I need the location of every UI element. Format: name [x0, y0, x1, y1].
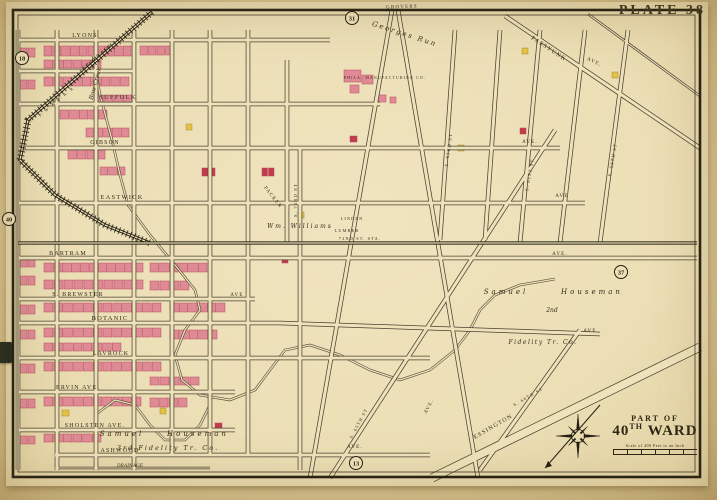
brick-building — [20, 305, 27, 314]
brick-building — [113, 328, 122, 337]
brick-building — [74, 362, 83, 371]
brick-building — [64, 303, 73, 312]
brick-building — [73, 434, 82, 442]
plate-ref-number: 37 — [618, 269, 625, 276]
brick-building — [20, 330, 27, 339]
brick-building — [124, 280, 133, 289]
street-line — [485, 30, 500, 240]
street-label: LAVROCK — [93, 351, 130, 357]
brick-building — [121, 128, 129, 137]
brick-building — [103, 303, 112, 312]
street-label: PACKER — [262, 186, 282, 210]
brick-building — [100, 167, 108, 175]
brick-building — [28, 399, 35, 408]
brick-building — [150, 377, 159, 385]
brick-building — [103, 362, 112, 371]
frame-building — [522, 48, 528, 54]
brick-building — [390, 97, 396, 103]
brick-building — [63, 60, 72, 68]
owner-label: 3rd Fidelity Tr. Co. — [117, 444, 219, 452]
plate-ref-number: 40 — [6, 216, 13, 223]
brick-building — [152, 303, 161, 312]
brick-building — [28, 330, 35, 339]
street-label: BARTRAM — [49, 251, 87, 257]
brick-building — [350, 136, 357, 142]
atlas-sheet: LYONSSUFFOLKGIBSONAVE.EASTWICKAVEBARTRAM… — [0, 0, 717, 500]
brick-building — [114, 280, 123, 289]
brick-building — [202, 168, 208, 176]
compass-rose — [556, 414, 600, 458]
brick-building — [44, 303, 53, 312]
brick-building — [111, 77, 120, 86]
brick-building — [70, 110, 79, 119]
brick-building — [179, 398, 188, 407]
brick-building — [83, 434, 92, 442]
owner-label: Houseman — [166, 430, 229, 438]
brick-building — [20, 436, 27, 444]
plate-ref-number: 18 — [19, 55, 26, 62]
brick-building — [189, 330, 198, 339]
brick-building — [64, 328, 73, 337]
plate-ref-number: 13 — [353, 460, 360, 467]
brick-building — [74, 303, 83, 312]
brick-building — [73, 397, 82, 406]
brick-building — [217, 303, 225, 312]
owner-label: Wm. Williams — [267, 223, 333, 230]
street-label: AVE. — [586, 57, 602, 68]
brick-building — [68, 150, 77, 159]
brick-building — [120, 77, 129, 86]
brick-building — [112, 128, 120, 137]
owner-label: Fidelity Tr. Co. — [507, 339, 577, 346]
street-label: AVE — [555, 194, 568, 199]
frame-building — [62, 410, 69, 416]
brick-building — [83, 397, 92, 406]
street-label: 72ND ST. STA. — [339, 236, 381, 241]
brick-building — [99, 263, 107, 272]
brick-building — [109, 167, 117, 175]
brick-building — [152, 362, 161, 371]
brick-building — [160, 398, 169, 407]
brick-building — [117, 263, 125, 272]
street-label: S. 73RD ST — [293, 183, 298, 217]
brick-building — [44, 263, 52, 272]
brick-building — [520, 128, 526, 134]
brick-building — [64, 343, 73, 351]
brick-building — [74, 280, 83, 289]
brick-building — [44, 362, 53, 371]
street-label: BOTANIC — [92, 315, 129, 322]
brick-building — [152, 328, 161, 337]
brick-building — [83, 303, 92, 312]
owner-label: Samuel — [100, 430, 145, 438]
brick-building — [64, 362, 73, 371]
brick-building — [149, 46, 157, 55]
brick-building — [150, 281, 159, 290]
brick-building — [28, 80, 35, 89]
brick-building — [142, 362, 151, 371]
street-label: S. BREWSTER — [52, 292, 104, 298]
street-label: AVE. — [424, 399, 436, 415]
brick-building — [103, 343, 112, 351]
brick-building — [44, 434, 53, 442]
brick-building — [123, 328, 132, 337]
brick-building — [44, 46, 52, 56]
street-label: AVE. — [552, 252, 568, 257]
brick-building — [74, 328, 83, 337]
part-of-label: PART OF — [604, 414, 706, 423]
street-line — [600, 30, 628, 243]
street-label: LINDEN — [341, 216, 364, 221]
brick-building — [140, 46, 148, 55]
binding-tab — [0, 342, 12, 363]
brick-building — [123, 303, 132, 312]
brick-building — [62, 46, 70, 56]
brick-building — [83, 343, 92, 351]
plate-title: PLATE 38 — [606, 3, 706, 19]
frame-building — [160, 408, 166, 414]
brick-building — [44, 60, 53, 68]
brick-building — [78, 150, 87, 159]
brick-building — [28, 48, 35, 57]
brick-building — [44, 328, 53, 337]
brick-building — [113, 362, 122, 371]
brick-building — [112, 343, 121, 351]
brick-building — [113, 303, 122, 312]
brick-building — [199, 330, 208, 339]
brick-building — [160, 263, 169, 272]
street-label: SUFFOLK — [99, 94, 136, 101]
ward-title-block: PART OF 40TH WARD Scale of 400 Feet to a… — [604, 414, 706, 455]
street-label: AVE. — [347, 445, 363, 450]
brick-building — [179, 303, 187, 312]
brick-building — [44, 280, 53, 289]
brick-building — [28, 305, 35, 314]
ward-label: 40TH WARD — [604, 423, 706, 440]
brick-building — [71, 263, 79, 272]
street-label: LYONS — [72, 33, 97, 39]
brick-building — [150, 263, 159, 272]
frame-building — [186, 124, 192, 130]
brick-building — [20, 276, 27, 285]
brick-building — [73, 60, 82, 68]
brick-building — [160, 281, 169, 290]
street-label: EASTWICK — [100, 194, 143, 201]
brick-building — [142, 303, 151, 312]
brick-building — [123, 46, 131, 56]
street-label: SHOLSTEN AVE. — [65, 423, 126, 429]
brick-building — [60, 110, 69, 119]
brick-building — [80, 263, 88, 272]
brick-building — [62, 263, 70, 272]
owner-label: Houseman — [560, 288, 623, 296]
owner-label: DRAINAGE — [116, 463, 144, 469]
brick-building — [79, 110, 88, 119]
brick-building — [189, 303, 197, 312]
brick-building — [73, 343, 82, 351]
brick-building — [28, 436, 35, 444]
brick-building — [20, 364, 27, 373]
brick-building — [142, 328, 151, 337]
brick-building — [108, 263, 116, 272]
brick-building — [44, 77, 53, 86]
brick-building — [114, 46, 122, 56]
brick-building — [83, 362, 92, 371]
brick-building — [103, 328, 112, 337]
brick-building — [269, 168, 275, 176]
scale-text: Scale of 400 Feet to an Inch — [604, 443, 706, 448]
brick-building — [104, 280, 113, 289]
magnetic-needle-arrowhead — [545, 461, 552, 468]
street-label: LUMBER — [335, 228, 360, 233]
brick-building — [28, 276, 35, 285]
brick-building — [160, 377, 169, 385]
brick-building — [86, 128, 94, 137]
brick-building — [64, 397, 73, 406]
brick-building — [350, 85, 359, 93]
brick-building — [79, 46, 87, 56]
street-label: AVE — [583, 329, 596, 334]
street-label: PHILA. MANUFACTURING CO. — [344, 76, 426, 80]
brick-building — [123, 362, 132, 371]
brick-building — [20, 80, 27, 89]
street-line — [520, 30, 540, 243]
brick-building — [198, 263, 207, 272]
brick-building — [262, 168, 268, 176]
brick-building — [101, 77, 110, 86]
frame-building — [612, 72, 618, 78]
street-label: ERVIN AVE. — [56, 385, 100, 391]
owner-label: 2nd — [545, 307, 558, 314]
brick-building — [64, 280, 73, 289]
brick-building — [70, 46, 78, 56]
brick-building — [157, 46, 165, 55]
brick-building — [84, 280, 93, 289]
brick-building — [82, 77, 91, 86]
brick-building — [190, 377, 199, 385]
brick-building — [28, 364, 35, 373]
owner-label: Samuel — [484, 288, 529, 296]
brick-building — [44, 397, 53, 406]
brick-building — [83, 328, 92, 337]
brick-building — [63, 434, 72, 442]
street-label: AVE — [230, 293, 243, 298]
street-label: AVE. — [522, 140, 538, 145]
brick-building — [44, 343, 53, 351]
plate-ref-number: 31 — [349, 15, 356, 22]
brick-building — [150, 398, 159, 407]
brick-building — [20, 399, 27, 408]
street-line — [432, 347, 700, 478]
street-label: GIBSON — [90, 140, 120, 146]
brick-building — [189, 263, 198, 272]
scale-bar — [613, 449, 697, 455]
